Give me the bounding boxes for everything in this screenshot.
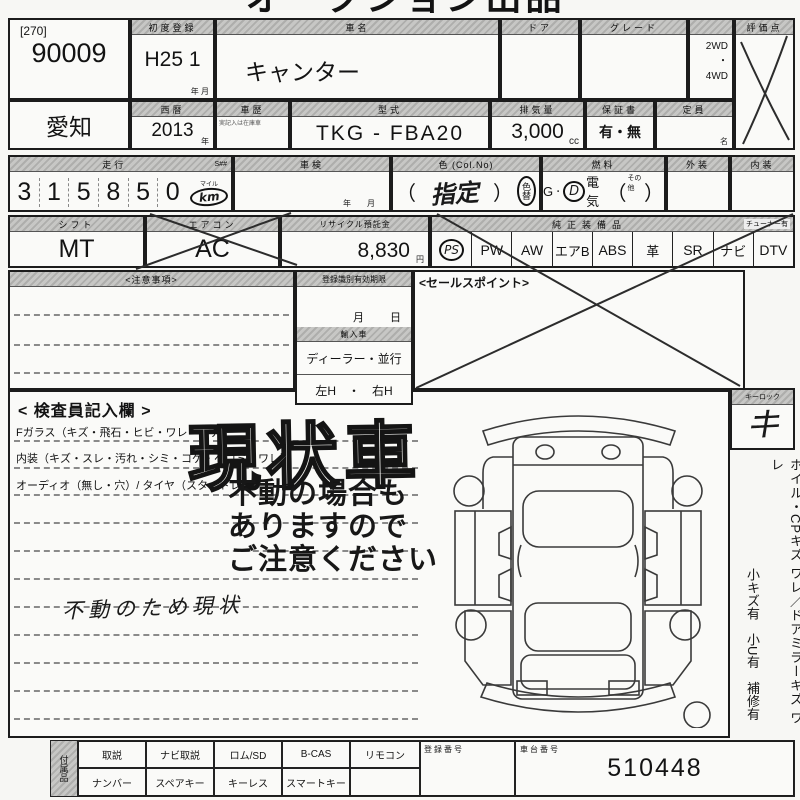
mileage-digit: 0 (158, 178, 187, 207)
exterior-cell: 外装 (666, 155, 730, 212)
mile-label: マイル (187, 179, 231, 188)
drive-cell: 2WD ・ 4WD (688, 18, 734, 100)
equipment-item: PW (472, 232, 512, 268)
km-oval-icon: km (189, 186, 229, 207)
fuel-electric: 電気 (586, 172, 605, 210)
bottom-item-empty (350, 768, 420, 797)
validity-day: 日 (390, 309, 401, 325)
bottom-item: キーレス (214, 768, 282, 797)
bottom-item: 取説 (78, 740, 146, 768)
caution-box: <注意事項> (8, 270, 295, 390)
recycle-fee-label: リサイクル預託金 (282, 217, 428, 232)
aircon-label: エアコン (147, 217, 278, 232)
aircon-value: AC (147, 232, 278, 266)
shaken-cell: 車検 年 月 (233, 155, 391, 212)
shift-cell: シフト MT (8, 215, 145, 268)
equipment-item: ナビ (714, 232, 754, 268)
displacement-unit: cc (569, 136, 579, 147)
clipped-title: オークション出品票 (233, 0, 578, 13)
grade-cell: グレード (580, 18, 688, 100)
chassis-cell: 車台番号 510448 (515, 740, 795, 797)
fuel-d-circled: D (563, 181, 585, 202)
paren: （ (396, 177, 416, 206)
interior-cell: 内装 (730, 155, 795, 212)
warranty-value: 有・無 (587, 117, 653, 147)
mileage-label: 走行 S## (10, 157, 231, 172)
car-diagram (425, 393, 730, 728)
mileage-digit: 1 (40, 178, 70, 207)
fuel-cell: 燃料 G ・ D 電気 （ その他 ） (541, 155, 666, 212)
mileage-digit: 8 (99, 178, 129, 207)
calendar-year-label: 西暦 (132, 102, 213, 117)
history-cell: 車歴 実記入は在庫車 (215, 100, 290, 150)
import-label: 輸入車 (297, 327, 411, 342)
color-label: 色 (Col.No) (393, 157, 539, 172)
right-strip-note1: ホイル・CPキズ ワレ／ドアミラーキズ ワレ (767, 458, 800, 736)
displacement-label: 排気量 (492, 102, 583, 117)
first-registration-value: H25 1 (132, 35, 213, 85)
handwritten-note: 不動のため現状 (62, 589, 245, 625)
chassis-value: 510448 (607, 754, 702, 783)
grade-label: グレード (582, 20, 686, 35)
warranty-label: 保証書 (587, 102, 653, 117)
drive-label (690, 20, 732, 35)
equipment-tuner-note: チューナー有 (744, 219, 790, 229)
history-note: 実記入は在庫車 (217, 117, 288, 128)
attachments-label: 付属品 (50, 740, 78, 797)
registration-validity-label: 登録識別有効期限 (297, 272, 411, 287)
interior-label: 内装 (732, 157, 793, 172)
reg-number-label: 登録番号 (421, 741, 467, 758)
equipment-item: PS (432, 232, 472, 268)
paren: ） (493, 177, 513, 206)
paren: （ (606, 177, 626, 206)
caution-label: <注意事項> (10, 272, 293, 287)
rating-label: 評価点 (736, 20, 793, 35)
door-label: ドア (502, 20, 578, 35)
first-registration-cell: 初度登録 H25 1 年 月 (130, 18, 215, 100)
color-change-oval-icon: 色替 (517, 176, 536, 206)
fuel-dot: ・ (554, 186, 562, 197)
bottom-item: ナビ取説 (146, 740, 214, 768)
recycle-fee-unit: 円 (416, 254, 424, 265)
lot-cell: [270] 90009 (8, 18, 130, 100)
calendar-year-unit: 年 (201, 136, 209, 147)
shaken-label: 車検 (235, 157, 389, 172)
fuel-other: その他 (627, 173, 643, 193)
shift-value: MT (10, 232, 143, 266)
equipment-item: DTV (754, 232, 793, 268)
bottom-item: ロム/SD (214, 740, 282, 768)
bottom-item: リモコン (350, 740, 420, 768)
auction-sheet: オークション出品票 [270] 90009 初度登録 H25 1 年 月 車名 … (0, 0, 800, 800)
equipment-item: エアB (553, 232, 593, 268)
model-code-cell: 型式 TKG - FBA20 (290, 100, 490, 150)
shift-label: シフト (10, 217, 143, 232)
rating-cell: 評価点 (734, 18, 795, 150)
sales-point-label: <セールスポイント> (415, 272, 743, 291)
fuel-label: 燃料 (543, 157, 664, 172)
mileage-digit: 3 (10, 178, 40, 207)
first-registration-label: 初度登録 (132, 20, 213, 35)
lot-bracket: [270] (10, 20, 128, 38)
equipment-item: SR (673, 232, 713, 268)
keylock-box: キーロック キ (730, 388, 795, 450)
paren: ） (644, 177, 664, 206)
lot-number: 90009 (10, 38, 128, 69)
fuel-g: G (543, 184, 553, 199)
equipment-cell: 純正装備品 チューナー有 PS PW AW エアB ABS 革 SR ナビ DT… (430, 215, 795, 268)
door-cell: ドア (500, 18, 580, 100)
right-strip-note2: 小キズ有 小U有 補修有 (743, 568, 762, 738)
calendar-year-cell: 西暦 2013 年 (130, 100, 215, 150)
sales-point-box: <セールスポイント> (413, 270, 745, 390)
mileage-digit: 5 (69, 178, 99, 207)
shaken-unit: 年 月 (343, 198, 375, 209)
clipped-title-text: オークション出品票 (233, 0, 578, 13)
equipment-item: ABS (593, 232, 633, 268)
recycle-fee-value: 8,830 (282, 232, 428, 263)
capacity-cell: 定員 名 (655, 100, 734, 150)
import-dealer: ディーラー・並行 (297, 342, 411, 375)
validity-month: 月 (353, 309, 364, 325)
first-registration-unit: 年 月 (191, 86, 209, 97)
aircon-cell: エアコン AC (145, 215, 280, 268)
stamp-warning: 不動の場合も ありますので ご注意ください (228, 478, 438, 577)
reg-number-cell: 登録番号 (420, 740, 515, 797)
mileage-cell: 走行 S## 3 1 5 8 5 0 マイル km (8, 155, 233, 212)
prefecture-cell: 愛知 (8, 100, 130, 150)
capacity-unit: 名 (720, 136, 728, 147)
bottom-item: ナンバー (78, 768, 146, 797)
exterior-label: 外装 (668, 157, 728, 172)
model-code-label: 型式 (292, 102, 488, 117)
model-code-value: TKG - FBA20 (292, 117, 488, 150)
inspector-label: < 検査員記入欄 > (18, 397, 152, 421)
registration-validity-box: 登録識別有効期限 月 日 輸入車 ディーラー・並行 左H ・ 右H (295, 270, 413, 405)
chassis-label: 車台番号 (520, 744, 560, 755)
recycle-fee-cell: リサイクル預託金 8,830 円 (280, 215, 430, 268)
capacity-label: 定員 (657, 102, 732, 117)
displacement-cell: 排気量 3,000 cc (490, 100, 585, 150)
color-cell: 色 (Col.No) （ 指定 ） 色替 (391, 155, 541, 212)
equipment-item: 革 (633, 232, 673, 268)
equipment-item: AW (512, 232, 552, 268)
drive-4wd: 4WD (690, 69, 728, 84)
drive-dot: ・ (690, 54, 728, 69)
bottom-item: B-CAS (282, 740, 350, 768)
warranty-cell: 保証書 有・無 (585, 100, 655, 150)
drive-2wd: 2WD (690, 39, 728, 54)
prefecture-value: 愛知 (10, 102, 128, 148)
keylock-mark: キ (730, 402, 795, 448)
car-name-value: キャンター (217, 35, 498, 87)
mileage-digit: 5 (129, 178, 159, 207)
bottom-item: スペアキー (146, 768, 214, 797)
history-label: 車歴 (217, 102, 288, 117)
car-name-cell: 車名 キャンター (215, 18, 500, 100)
mileage-s-label: S## (215, 161, 227, 168)
bottom-item: スマートキー (282, 768, 350, 797)
color-value: 指定 (415, 171, 494, 211)
car-name-label: 車名 (217, 20, 498, 35)
equipment-label: 純正装備品 チューナー有 (432, 217, 793, 232)
